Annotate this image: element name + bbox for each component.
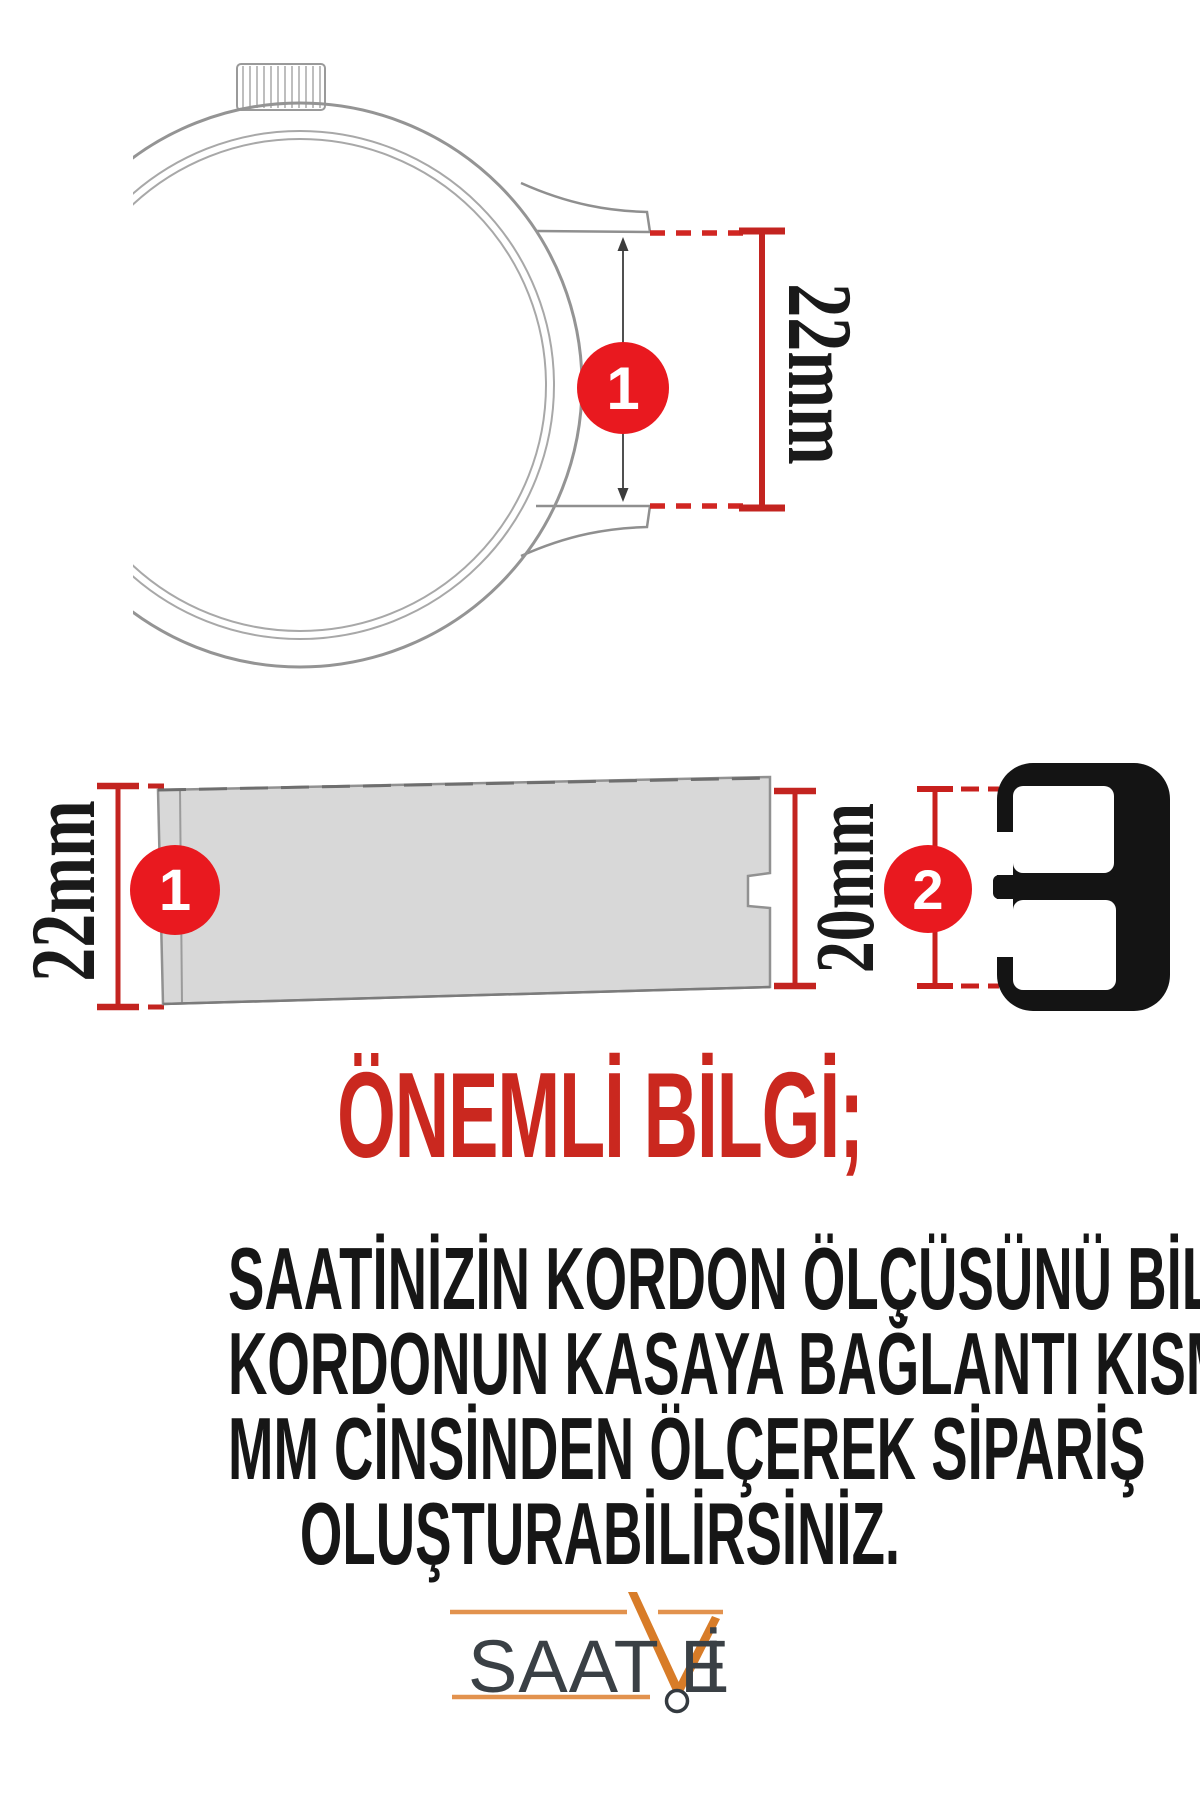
strap-width-marker-2: 2 xyxy=(884,845,972,933)
infographic-page: 1 1 2 22mm 22mm 20mm ÖNEMLİ BİLGİ; SAATİ… xyxy=(0,0,1200,1800)
lug-width-marker-1: 1 xyxy=(577,342,669,434)
info-line: KORDONUN KASAYA BAĞLANTI KISMINI CETVEL … xyxy=(228,1321,972,1407)
info-line: SAATİNİZİN KORDON ÖLÇÜSÜNÜ BİLMİYORSANIZ xyxy=(228,1236,972,1322)
watch-drawing xyxy=(18,64,650,667)
info-line: MM CİNSİNDEN ÖLÇEREK SİPARİŞ xyxy=(228,1406,972,1492)
info-line: OLUŞTURABİLİRSİNİZ. xyxy=(228,1491,972,1577)
strap-width-marker-1: 1 xyxy=(130,845,220,935)
buckle-drawing xyxy=(993,763,1170,1011)
lug-width-label: 22mm xyxy=(772,283,868,461)
strap-width-label-left: 22mm xyxy=(15,804,111,982)
logo-wordmark-left: SAAT E xyxy=(468,1627,730,1707)
logo-wordmark-right: İ xyxy=(703,1627,725,1707)
info-title: ÖNEMLİ BİLGİ; xyxy=(228,1052,972,1178)
strap-width-label-right: 20mm xyxy=(798,797,894,979)
strap-drawing xyxy=(158,777,770,1004)
watch-case-circles xyxy=(18,103,582,667)
